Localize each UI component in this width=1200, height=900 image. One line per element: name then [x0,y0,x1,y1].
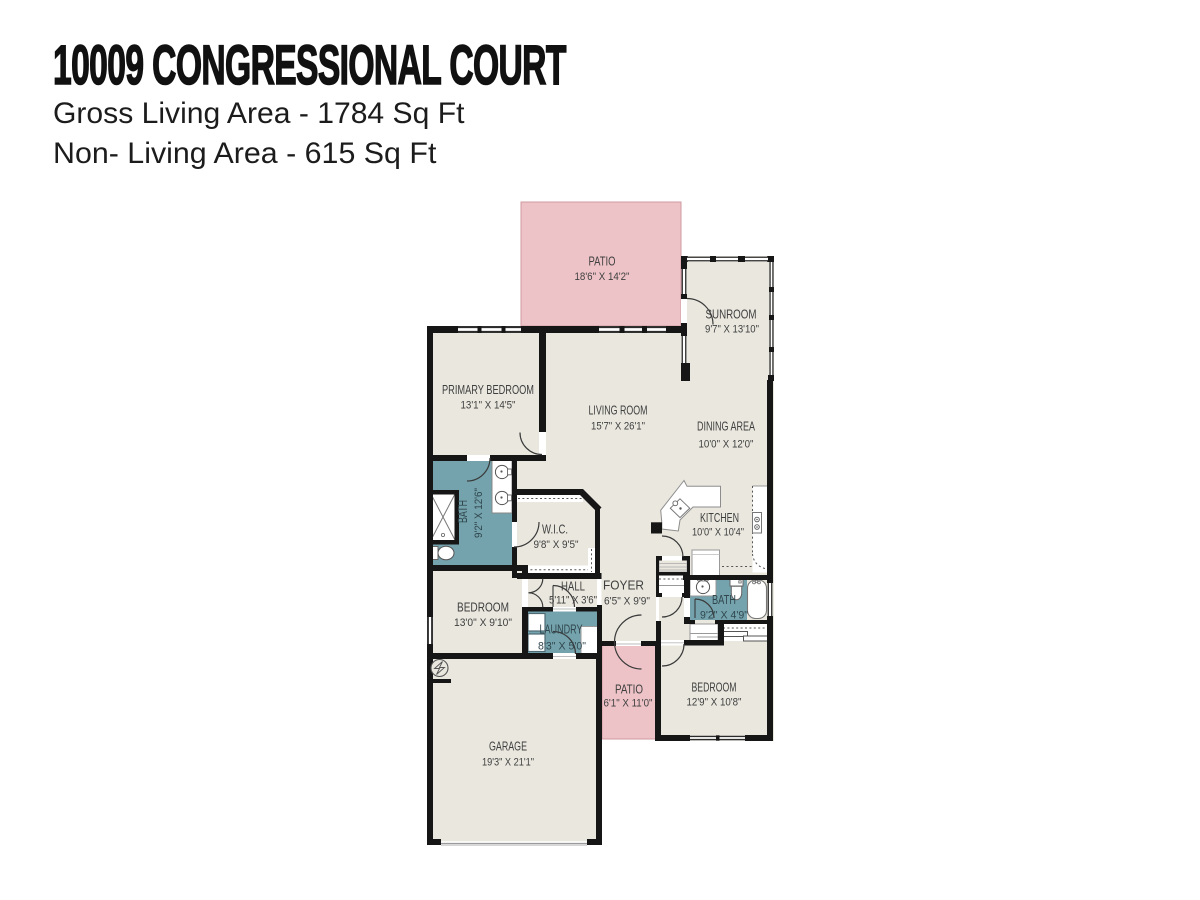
svg-text:9'7" X 13'10": 9'7" X 13'10" [705,324,759,336]
svg-text:13'0" X 9'10": 13'0" X 9'10" [454,617,512,629]
svg-text:PRIMARY BEDROOM: PRIMARY BEDROOM [442,382,534,397]
svg-text:8'3" X 5'0": 8'3" X 5'0" [538,641,586,653]
svg-text:9'2" X 12'6": 9'2" X 12'6" [473,488,485,538]
svg-text:9'2" X 4'9": 9'2" X 4'9" [700,610,748,622]
svg-text:HALL: HALL [561,579,585,594]
svg-text:SUNROOM: SUNROOM [706,307,757,322]
svg-text:PATIO: PATIO [589,254,616,269]
svg-text:BEDROOM: BEDROOM [457,600,509,615]
svg-text:13'1" X 14'5": 13'1" X 14'5" [461,400,516,412]
svg-text:PATIO: PATIO [615,682,643,697]
svg-text:10'0" X 10'4": 10'0" X 10'4" [692,527,744,539]
svg-text:W.I.C.: W.I.C. [542,522,568,537]
svg-text:19'3" X 21'1": 19'3" X 21'1" [482,757,534,769]
svg-text:LAUNDRY: LAUNDRY [540,622,583,637]
svg-text:12'9" X 10'8": 12'9" X 10'8" [687,697,742,709]
svg-text:5'11" X 3'6": 5'11" X 3'6" [549,595,597,607]
svg-text:6'5" X 9'9": 6'5" X 9'9" [604,596,650,608]
svg-text:DINING AREA: DINING AREA [697,419,755,434]
svg-text:BATH: BATH [712,592,736,607]
svg-text:18'6" X 14'2": 18'6" X 14'2" [575,271,630,283]
svg-text:10'0" X 12'0": 10'0" X 12'0" [699,439,754,451]
svg-text:6'1" X 11'0": 6'1" X 11'0" [604,698,653,710]
svg-text:BATH: BATH [455,500,470,523]
svg-text:FOYER: FOYER [603,578,644,593]
svg-text:15'7" X 26'1": 15'7" X 26'1" [591,421,645,433]
svg-text:GARAGE: GARAGE [489,739,527,754]
svg-text:BEDROOM: BEDROOM [692,680,737,695]
svg-text:KITCHEN: KITCHEN [700,510,739,525]
svg-text:LIVING ROOM: LIVING ROOM [589,403,648,418]
svg-text:9'8" X 9'5": 9'8" X 9'5" [534,539,579,551]
